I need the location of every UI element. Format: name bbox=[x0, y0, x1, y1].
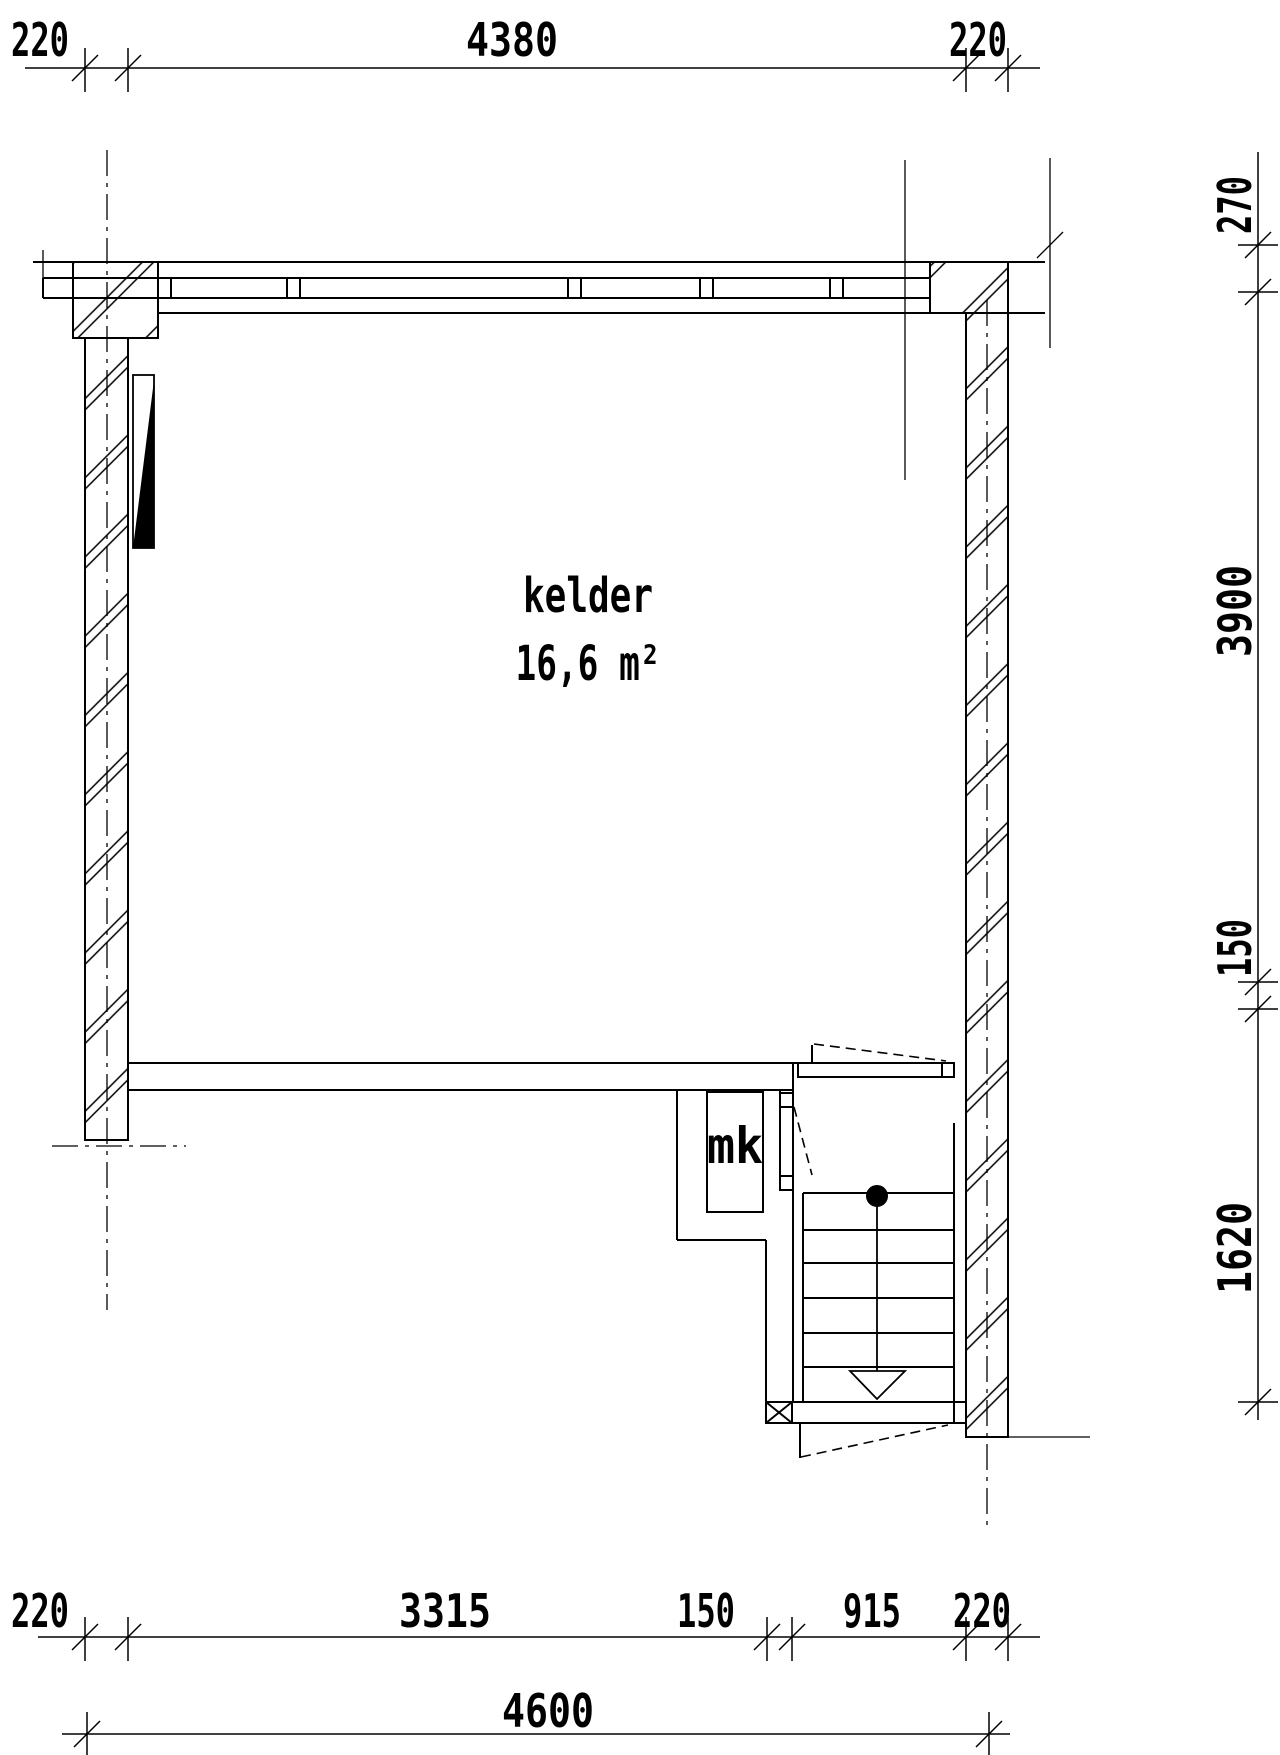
dim-total-width: 4600 bbox=[502, 1684, 594, 1738]
meter-cupboard-label: mk bbox=[707, 1117, 763, 1175]
wall-corner-top-left bbox=[73, 262, 158, 338]
dim-top-left: 220 bbox=[11, 13, 69, 67]
stair-walk-arrow-icon bbox=[850, 1371, 905, 1399]
door-jamb bbox=[780, 1176, 793, 1190]
wall-corner-top-right bbox=[930, 262, 1008, 313]
top-wall-window-band bbox=[33, 250, 1045, 313]
interior-walls bbox=[87, 1063, 798, 1402]
door-swing-dashed bbox=[794, 1107, 812, 1175]
dim-top-right: 220 bbox=[949, 13, 1007, 67]
dim-bottom-stair: 915 bbox=[843, 1584, 901, 1638]
stair-threshold bbox=[766, 1402, 966, 1423]
floor-plan-page: 220 4380 220 270 3900 150 1620 220 3315 … bbox=[0, 0, 1280, 1755]
dim-bottom-interior: 3315 bbox=[399, 1584, 491, 1638]
window-mullion bbox=[158, 278, 171, 298]
grid-lines bbox=[52, 150, 987, 1530]
window-mullion bbox=[830, 278, 843, 298]
window-mullion bbox=[568, 278, 581, 298]
room-area-label: 16,6 m² bbox=[516, 636, 661, 692]
door-jamb bbox=[780, 1093, 793, 1107]
room-name-label: kelder bbox=[523, 568, 653, 624]
door-swing-dashed bbox=[801, 1425, 948, 1457]
window-mullion bbox=[700, 278, 713, 298]
landing-trimmer bbox=[798, 1063, 954, 1077]
stairwell bbox=[766, 1044, 966, 1458]
wall-opening-wedge bbox=[133, 375, 154, 548]
dim-bottom-wall: 150 bbox=[677, 1584, 735, 1638]
dim-right-top: 270 bbox=[1208, 176, 1262, 234]
floor-plan-canvas: 220 4380 220 270 3900 150 1620 220 3315 … bbox=[0, 0, 1280, 1755]
dim-right-stair: 1620 bbox=[1208, 1202, 1262, 1294]
dim-right-main: 3900 bbox=[1208, 565, 1262, 657]
dim-top-span: 4380 bbox=[466, 13, 558, 67]
door-swing-dashed bbox=[814, 1044, 946, 1061]
walls bbox=[73, 262, 1008, 1437]
window-mullion bbox=[287, 278, 300, 298]
dim-bottom-right: 220 bbox=[953, 1584, 1011, 1638]
dim-bottom-left: 220 bbox=[11, 1584, 69, 1638]
dim-right-wall: 150 bbox=[1208, 919, 1262, 977]
